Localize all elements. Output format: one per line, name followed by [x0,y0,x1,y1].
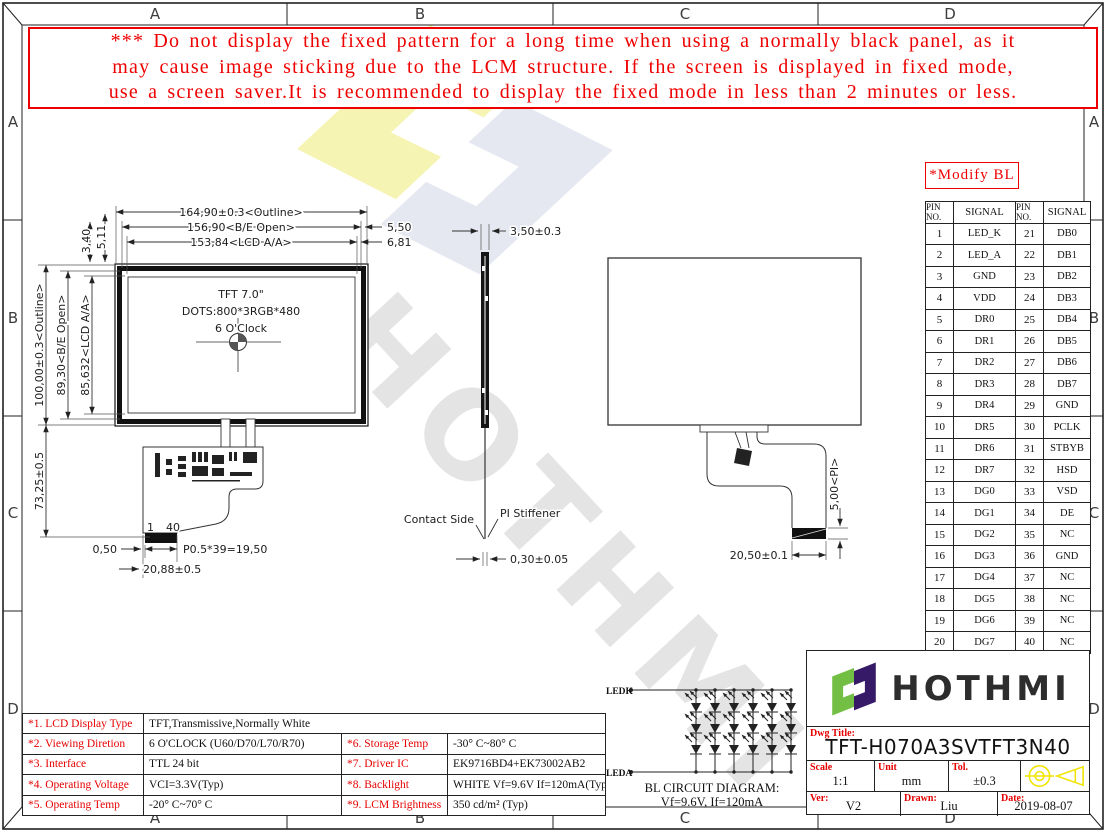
pin-signal-cell: GND [1044,546,1091,568]
pin-number-cell: 11 [926,439,954,461]
pin-signal-cell: DG2 [954,525,1016,547]
pin-number-cell: 13 [926,482,954,504]
bl-circuit-title: BL CIRCUIT DIAGRAM: [645,781,780,795]
led-strings [685,688,798,773]
unit-value: mm [875,774,948,789]
dim-be-width: 156,90<B/E Open> [187,221,295,234]
dim-be-height: 89,30<B/E Open> [55,294,68,395]
dim-aa-width: 153,84<LCD A/A> [190,236,291,249]
hothmi-logo-icon [825,661,883,717]
bl-circuit-drawing: LEDK LEDA BL CIRCUIT DIAGRAM: Vf=9.6V, I… [606,687,797,809]
pin-signal-cell: DB7 [1044,374,1091,396]
pin-number-cell: 23 [1016,267,1044,289]
dim-fpc-thickness: 0,30±0.05 [510,553,568,566]
pin-signal-cell: LED_A [954,245,1016,267]
brand-wordmark: HOTHMI [891,669,1071,709]
pin-number-cell: 14 [926,503,954,525]
spec-value: -30° C~80° C [448,734,606,754]
dim-fpc-length: 73,25±0.5 [33,452,46,510]
modify-bl-note: *Modify BL [925,162,1019,189]
front-view-title-line2: DOTS:800*3RGB*480 [182,305,300,318]
pin-signal-cell: GND [954,267,1016,289]
drawn-by-cell: Drawn: Liu [901,792,998,816]
projection-symbol-cell [1021,761,1089,791]
pin-number-cell: 39 [1016,611,1044,633]
pin-signal-cell: DG0 [954,482,1016,504]
unit-label: Unit [878,762,897,773]
pin-signal-cell: DB1 [1044,245,1091,267]
pin-signal-cell: DR1 [954,331,1016,353]
zone-col-b-top: B [410,4,430,24]
scale-label: Scale [810,762,832,773]
zone-row-d-left: D [3,699,23,719]
title-block: HOTHMI Dwg Title: TFT-H070A3SVTFT3N40 Sc… [806,650,1090,815]
scale-unit-tol-row: Scale 1:1 Unit mm Tol. ±0.3 [807,761,1089,792]
spec-value: WHITE Vf=9.6V If=120mA(Typ) [448,775,606,795]
zone-col-a-top: A [145,4,165,24]
pin-number-cell: 4 [926,288,954,310]
logo-row: HOTHMI [807,651,1089,727]
datasheet-page: { "border": { "cols": ["A", "B", "C", "D… [0,0,1106,832]
spec-label: *4. Operating Voltage [23,775,144,795]
spec-label: *2. Viewing Diretion [23,734,144,754]
spec-value: VCI=3.3V(Typ) [144,775,342,795]
tolerance-value: ±0.3 [949,774,1020,789]
warning-line-3: use a screen saver.It is recommended to … [30,80,1096,106]
pin-signal-cell: DR0 [954,310,1016,332]
dim-050: 0,50 [93,543,118,556]
pin-signal-cell: DB4 [1044,310,1091,332]
pin-number-cell: 26 [1016,331,1044,353]
pin-number-cell: 24 [1016,288,1044,310]
pin-signal-cell: DR4 [954,396,1016,418]
pin-number-cell: 35 [1016,525,1044,547]
pin-table-header-pin-no-2: PIN NO. [1016,202,1044,224]
contact-side-label: Contact Side [404,513,474,526]
bl-circuit-subtitle: Vf=9.6V, If=120mA [661,795,763,809]
pin-signal-cell: LED_K [954,224,1016,246]
pin-signal-cell: DB6 [1044,353,1091,375]
spec-label: *9. LCM Brightness [342,796,448,816]
pin-number-cell: 33 [1016,482,1044,504]
spec-label-lcd-display-type: *1. LCD Display Type [23,714,144,734]
pin-signal-cell: VDD [954,288,1016,310]
pin-number-cell: 34 [1016,503,1044,525]
zone-col-c-top: C [675,4,695,24]
drawn-by-value: Liu [901,799,997,814]
pin-table: PIN NO. SIGNAL PIN NO. SIGNAL 1 LED_K 21… [925,201,1091,654]
pin-number-cell: 27 [1016,353,1044,375]
dim-thickness: 3,50±0.3 [510,225,561,238]
dim-aa-height: 85,632<LCD A/A> [79,294,92,395]
pin-table-header-signal-1: SIGNAL [954,202,1016,224]
pin-number-cell: 1 [926,224,954,246]
pin-signal-cell: NC [1044,525,1091,547]
zone-col-d-top: D [940,4,960,24]
pin-number-cell: 9 [926,396,954,418]
spec-label: *3. Interface [23,755,144,775]
zone-row-c-left: C [3,503,23,523]
zone-col-c-bottom: C [675,808,695,828]
pin-number-cell: 19 [926,611,954,633]
spec-table: *1. LCD Display Type TFT,Transmissive,No… [22,713,606,816]
pin-number-cell: 28 [1016,374,1044,396]
spec-label: *5. Operating Temp [23,796,144,816]
spec-value: EK9716BD4+EK73002AB2 [448,755,606,775]
pin-signal-cell: DR2 [954,353,1016,375]
pin-number-cell: 22 [1016,245,1044,267]
pin-signal-cell: DB5 [1044,331,1091,353]
version-value: V2 [807,799,900,814]
pin-signal-cell: VSD [1044,482,1091,504]
fpc-pin-40: 40 [166,521,180,534]
spec-value: TTL 24 bit [144,755,342,775]
pin-number-cell: 29 [1016,396,1044,418]
zone-row-b-left: B [3,308,23,328]
pin-signal-cell: DG5 [954,589,1016,611]
pin-number-cell: 17 [926,568,954,590]
pin-number-cell: 30 [1016,417,1044,439]
front-view-title-line1: TFT 7.0" [217,288,264,301]
pin-signal-cell: NC [1044,611,1091,633]
pin-number-cell: 25 [1016,310,1044,332]
dim-550: 5,50 [387,221,412,234]
pin-number-cell: 37 [1016,568,1044,590]
dim-pi-stiffener: 5,00<PI> [828,458,841,511]
leda-label: LEDA [606,769,633,779]
scale-cell: Scale 1:1 [807,761,875,791]
pin-number-cell: 10 [926,417,954,439]
spec-value: -20° C~70° C [144,796,342,816]
date-cell: Date: 2019-08-07 [998,792,1089,816]
pin-signal-cell: GND [1044,396,1091,418]
dim-pitch: P0.5*39=19,50 [183,543,267,556]
date-value: 2019-08-07 [998,799,1089,814]
pin-number-cell: 6 [926,331,954,353]
fpc-pin-1: 1 [147,521,154,534]
pin-number-cell: 12 [926,460,954,482]
dim-outline-height: 100,00±0.3<Outline> [33,283,46,406]
pin-signal-cell: DR5 [954,417,1016,439]
pin-signal-cell: STBYB [1044,439,1091,461]
dim-681: 6,81 [387,236,412,249]
front-view-title-line3: 6 O'Clock [215,322,268,335]
dwg-title-row: Dwg Title: TFT-H070A3SVTFT3N40 [807,727,1089,761]
dim-back-connector: 20,50±0.1 [730,549,788,562]
pin-signal-cell: DG3 [954,546,1016,568]
pin-number-cell: 5 [926,310,954,332]
tolerance-label: Tol. [952,762,968,773]
spec-label: *8. Backlight [342,775,448,795]
ver-drawn-date-row: Ver: V2 Drawn: Liu Date: 2019-08-07 [807,792,1089,816]
pin-number-cell: 16 [926,546,954,568]
pin-signal-cell: DR3 [954,374,1016,396]
pi-stiffener-label: PI Stiffener [500,507,561,520]
version-cell: Ver: V2 [807,792,901,816]
pin-number-cell: 3 [926,267,954,289]
pin-signal-cell: DB3 [1044,288,1091,310]
pin-number-cell: 32 [1016,460,1044,482]
pin-number-cell: 8 [926,374,954,396]
pin-number-cell: 2 [926,245,954,267]
pin-signal-cell: HSD [1044,460,1091,482]
side-view-drawing: 3,50±0.3 Contact Side PI Stiffener 0,30±… [404,224,568,566]
ledk-label: LEDK [606,687,634,697]
pin-signal-cell: DR7 [954,460,1016,482]
zone-row-a-right: A [1084,112,1104,132]
pin-number-cell: 38 [1016,589,1044,611]
pin-signal-cell: DB0 [1044,224,1091,246]
pin-signal-cell: DG4 [954,568,1016,590]
pin-number-cell: 21 [1016,224,1044,246]
spec-value-lcd-display-type: TFT,Transmissive,Normally White [144,714,606,734]
pin-number-cell: 31 [1016,439,1044,461]
dwg-title-value: TFT-H070A3SVTFT3N40 [807,735,1089,759]
pin-signal-cell: DB2 [1044,267,1091,289]
pin-signal-cell: NC [1044,589,1091,611]
spec-value: 350 cd/m² (Typ) [448,796,606,816]
warning-line-2: may cause image sticking due to the LCM … [30,55,1096,81]
dim-340: 3,40 [80,229,93,254]
spec-label: *7. Driver IC [342,755,448,775]
spec-value: 6 O'CLOCK (U60/D70/L70/R70) [144,734,342,754]
pin-signal-cell: DR6 [954,439,1016,461]
pin-number-cell: 15 [926,525,954,547]
pin-table-header-signal-2: SIGNAL [1044,202,1091,224]
pin-signal-cell: DG1 [954,503,1016,525]
zone-row-a-left: A [3,112,23,132]
third-angle-projection-icon [1024,763,1086,789]
pin-table-header-pin-no-1: PIN NO. [926,202,954,224]
back-view-drawing: 5,00<PI> 20,50±0.1 [608,258,861,562]
pin-number-cell: 36 [1016,546,1044,568]
pin-number-cell: 7 [926,353,954,375]
pin-signal-cell: DE [1044,503,1091,525]
scale-value: 1:1 [807,774,874,789]
dim-511: 5,11 [95,225,108,250]
pin-signal-cell: DG6 [954,611,1016,633]
unit-cell: Unit mm [875,761,949,791]
pin-signal-cell: PCLK [1044,417,1091,439]
warning-note: *** Do not display the fixed pattern for… [28,27,1098,109]
pin-number-cell: 18 [926,589,954,611]
tolerance-cell: Tol. ±0.3 [949,761,1021,791]
warning-line-1: *** Do not display the fixed pattern for… [30,29,1096,55]
dim-connector-width: 20,88±0.5 [143,563,201,576]
dim-outline-width: 164,90±0.3<Outline> [179,206,302,219]
pin-signal-cell: NC [1044,568,1091,590]
spec-label: *6. Storage Temp [342,734,448,754]
